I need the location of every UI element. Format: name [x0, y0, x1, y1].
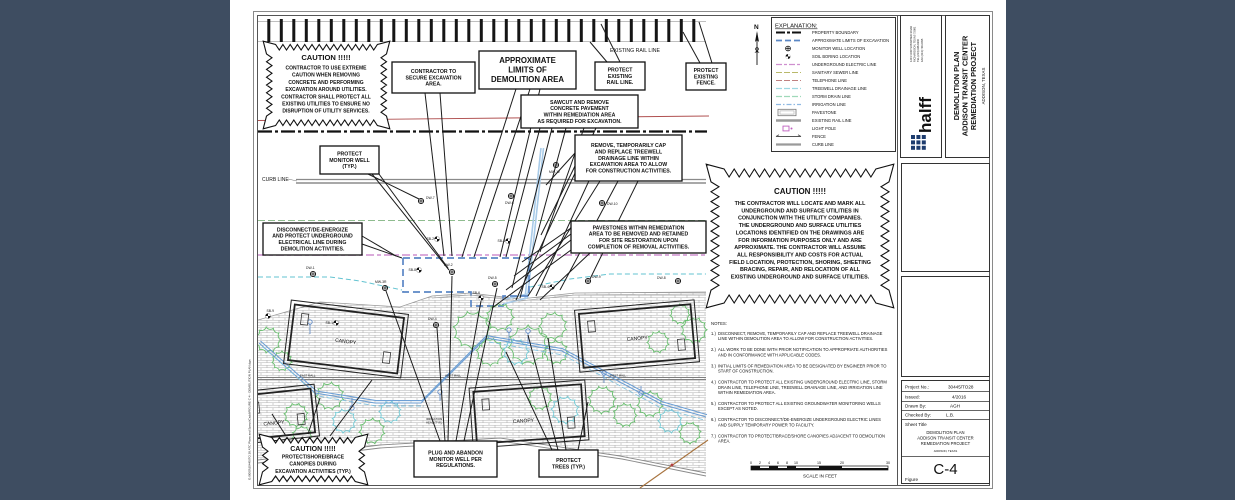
svg-text:CONTRACTOR TO PROTECT/BRACE/SH: CONTRACTOR TO PROTECT/BRACE/SHORE CANOPI…: [718, 433, 885, 438]
svg-text:DEMOLITION ACTIVITIES.: DEMOLITION ACTIVITIES.: [281, 246, 345, 252]
svg-text:Issued:: Issued:: [905, 395, 920, 400]
svg-text:EXCAVATION ACTIVITIES (TYP.): EXCAVATION ACTIVITIES (TYP.): [275, 469, 351, 475]
svg-text:ADDISON TRANSIT CENTER: ADDISON TRANSIT CENTER: [917, 436, 973, 441]
svg-text:(TYP.): (TYP.): [342, 164, 357, 170]
svg-text:EAST MALL: EAST MALL: [300, 374, 316, 378]
svg-text:EXISTING RAIL LINE: EXISTING RAIL LINE: [610, 48, 661, 54]
svg-text:STORM DRAIN LINE: STORM DRAIN LINE: [812, 94, 851, 99]
svg-text:DW-5: DW-5: [488, 276, 497, 280]
svg-text:TREEWELL DRAINAGE LINE: TREEWELL DRAINAGE LINE: [812, 86, 867, 91]
svg-text:DISCONNECT/DE-ENERGIZE: DISCONNECT/DE-ENERGIZE: [277, 227, 349, 233]
svg-text:1201 NORTH BOWSER ROAD: 1201 NORTH BOWSER ROAD: [909, 26, 913, 62]
svg-text:4/2016: 4/2016: [952, 395, 966, 400]
svg-text:DEMOLITION AREA: DEMOLITION AREA: [491, 75, 564, 84]
svg-text:CONTRACTOR TO USE EXTREME: CONTRACTOR TO USE EXTREME: [286, 66, 368, 72]
svg-text:SAWCUT AND REMOVE: SAWCUT AND REMOVE: [550, 100, 609, 106]
svg-text:CANOPIES DURING: CANOPIES DURING: [289, 462, 336, 468]
svg-text:DW-1: DW-1: [306, 266, 315, 270]
svg-text:5.): 5.): [711, 401, 716, 406]
svg-text:RAIL LINE.: RAIL LINE.: [607, 80, 634, 86]
svg-text:UNDERGROUND ELECTRIC LINE: UNDERGROUND ELECTRIC LINE: [812, 62, 877, 67]
svg-text:SB-8: SB-8: [408, 268, 416, 272]
svg-text:SB-1: SB-1: [325, 321, 333, 325]
svg-text:FOR SITE RESTORATION UPON: FOR SITE RESTORATION UPON: [599, 238, 678, 244]
svg-text:DW-10: DW-10: [607, 202, 618, 206]
svg-text:CONTRACTOR TO: CONTRACTOR TO: [411, 69, 456, 75]
svg-text:NOTES:: NOTES:: [711, 321, 727, 326]
svg-text:PROTECT: PROTECT: [694, 68, 720, 74]
svg-text:DW-9: DW-9: [592, 275, 601, 279]
svg-text:Drawn By:: Drawn By:: [905, 404, 926, 409]
svg-text:7.): 7.): [711, 433, 716, 438]
svg-text:DISRUPTION OF UTILITY SERVICES: DISRUPTION OF UTILITY SERVICES.: [282, 109, 370, 115]
svg-text:MONITOR WELL: MONITOR WELL: [329, 158, 370, 164]
svg-text:AS REQUIRED FOR EXCAVATION.: AS REQUIRED FOR EXCAVATION.: [537, 119, 622, 125]
svg-text:Figure: Figure: [905, 477, 918, 482]
svg-text:EXISTING UNDERGROUND AND SURFA: EXISTING UNDERGROUND AND SURFACE UTILITI…: [731, 275, 870, 281]
svg-text:0: 0: [750, 461, 752, 465]
svg-text:3.): 3.): [711, 363, 716, 368]
svg-text:TELEPHONE LINE: TELEPHONE LINE: [812, 78, 847, 83]
svg-text:2: 2: [759, 461, 761, 465]
svg-text:LOCATIONS IDENTIFIED ON THE DR: LOCATIONS IDENTIFIED ON THE DRAWINGS ARE: [736, 230, 865, 236]
svg-text:AGH: AGH: [950, 404, 960, 409]
svg-text:CONJUNCTION WITH THE UTILITY C: CONJUNCTION WITH THE UTILITY COMPANIES.: [738, 216, 863, 222]
svg-text:ADDISON, TEXAS: ADDISON, TEXAS: [934, 449, 958, 453]
svg-text:MONITOR WELL LOCATION: MONITOR WELL LOCATION: [812, 46, 865, 51]
svg-text:FAX (214) 739-0095: FAX (214) 739-0095: [920, 38, 924, 62]
svg-text:APPROXIMATE. THE CONTRACTOR W: APPROXIMATE. THE CONTRACTOR WILL ASSUME: [734, 245, 866, 251]
svg-text:RICHARDSON, TEXAS 75081: RICHARDSON, TEXAS 75081: [913, 26, 917, 62]
svg-text:PROPERTY BOUNDARY: PROPERTY BOUNDARY: [812, 30, 859, 35]
svg-text:WITHIN REMEDIATION AREA.: WITHIN REMEDIATION AREA.: [718, 390, 776, 395]
svg-text:8: 8: [786, 461, 788, 465]
svg-text:1.): 1.): [711, 331, 716, 336]
svg-text:CAUTION !!!!!: CAUTION !!!!!: [301, 53, 350, 62]
svg-text:REMEDIATION PROJECT: REMEDIATION PROJECT: [969, 41, 978, 130]
svg-text:AND PROTECT UNDERGROUND: AND PROTECT UNDERGROUND: [272, 234, 353, 240]
svg-text:AND REPLACE TREEWELL: AND REPLACE TREEWELL: [595, 149, 663, 155]
svg-text:EXPLANATION:: EXPLANATION:: [775, 24, 818, 30]
svg-text:PROTECT: PROTECT: [556, 458, 582, 464]
svg-text:Checked By:: Checked By:: [905, 413, 931, 418]
svg-text:FIELD LOCATION, PROTECTION, SH: FIELD LOCATION, PROTECTION, SHORING, SHE…: [729, 260, 871, 266]
svg-text:AND SUPPLY TEMPORARY POWER TO: AND SUPPLY TEMPORARY POWER TO FACILITY.: [718, 422, 814, 427]
svg-text:30445/TO28: 30445/TO28: [948, 385, 974, 390]
svg-text:CONTRACTOR SHALL PROTECT ALL: CONTRACTOR SHALL PROTECT ALL: [281, 94, 371, 100]
svg-text:LINE WITHIN DEMOLITION AREA TO: LINE WITHIN DEMOLITION AREA TO ALLOW FOR…: [718, 336, 873, 341]
svg-text:4: 4: [768, 461, 770, 465]
svg-text:EXISTING: EXISTING: [608, 74, 632, 80]
svg-text:10: 10: [794, 461, 798, 465]
svg-text:REGULATIONS.: REGULATIONS.: [436, 463, 475, 469]
svg-text:DEMOLITION PLAN: DEMOLITION PLAN: [926, 430, 964, 435]
svg-text:CONCRETE PAVEMENT: CONCRETE PAVEMENT: [550, 106, 609, 112]
svg-text:DW-7: DW-7: [426, 196, 435, 200]
svg-text:AND IN CONFORMANCE WITH APPLIC: AND IN CONFORMANCE WITH APPLICABLE CODES…: [718, 352, 821, 357]
svg-text:Sheet Title: Sheet Title: [905, 422, 927, 427]
svg-text:CAUTION !!!!!: CAUTION !!!!!: [774, 187, 826, 196]
svg-text:PROTECT/SHORE/BRACE: PROTECT/SHORE/BRACE: [282, 455, 345, 461]
svg-text:FENCE.: FENCE.: [696, 81, 716, 87]
svg-text:START OF CONSTRUCTION.: START OF CONSTRUCTION.: [718, 369, 774, 374]
svg-text:AREA.: AREA.: [425, 82, 442, 88]
svg-text:EXISTING: EXISTING: [694, 74, 718, 80]
svg-text:FOR CONSTRUCTION ACTIVITIES.: FOR CONSTRUCTION ACTIVITIES.: [586, 169, 672, 175]
svg-text:TEL (214) 346-6200: TEL (214) 346-6200: [916, 38, 920, 62]
svg-text:EXCEPT AS NOTED.: EXCEPT AS NOTED.: [718, 406, 758, 411]
svg-text:DRAINAGE LINE WITHIN: DRAINAGE LINE WITHIN: [598, 156, 659, 162]
svg-text:20: 20: [840, 461, 844, 465]
svg-text:Project No.:: Project No.:: [905, 385, 929, 390]
svg-text:ALL RESPONSIBILITY AND COSTS F: ALL RESPONSIBILITY AND COSTS FOR ACTUAL: [737, 252, 864, 258]
svg-text:LIGHT POLE: LIGHT POLE: [812, 126, 836, 131]
svg-text:FENCE: FENCE: [812, 134, 826, 139]
svg-text:UNDERGROUND AND SURFACE UTILIT: UNDERGROUND AND SURFACE UTILITIES IN: [741, 208, 858, 214]
svg-text:EXISTING RAIL LINE: EXISTING RAIL LINE: [812, 118, 852, 123]
svg-text:WEST MALL: WEST MALL: [610, 374, 627, 378]
svg-text:REMEDIATION PROJECT: REMEDIATION PROJECT: [921, 441, 971, 446]
svg-text:BRACING, REPAIR, AND RELOCATIO: BRACING, REPAIR, AND RELOCATION OF ALL: [740, 267, 861, 273]
svg-text:WEST MALL: WEST MALL: [445, 374, 462, 378]
svg-text:EXCAVATION AROUND UTILITIES.: EXCAVATION AROUND UTILITIES.: [285, 87, 367, 93]
svg-text:MONITOR WELL PER: MONITOR WELL PER: [429, 457, 482, 463]
svg-text:REMOVE, TEMPORARILY CAP: REMOVE, TEMPORARILY CAP: [591, 143, 666, 149]
svg-text:SANITARY SEWER LINE: SANITARY SEWER LINE: [812, 70, 859, 75]
svg-text:EXISTING UTILITIES TO ENSURE N: EXISTING UTILITIES TO ENSURE NO: [282, 102, 370, 108]
svg-text:6.): 6.): [711, 417, 716, 422]
svg-text:PLUG AND ABANDON: PLUG AND ABANDON: [428, 450, 483, 456]
svg-text:6: 6: [777, 461, 779, 465]
svg-text:PROTECT: PROTECT: [608, 67, 634, 73]
svg-text:CONCRETE AND PERFORMING: CONCRETE AND PERFORMING: [288, 80, 363, 86]
svg-text:2.): 2.): [711, 347, 716, 352]
svg-text:FOR INFORMATION PURPOSES ONLY: FOR INFORMATION PURPOSES ONLY AND ARE: [738, 238, 862, 244]
svg-text:SOIL BORING LOCATION: SOIL BORING LOCATION: [812, 54, 860, 59]
svg-text:G:\0000\30445\TO 28 ATC Plans: G:\0000\30445\TO 28 ATC Plans and Specs\…: [248, 359, 252, 480]
svg-text:COMPLETION OF REMOVAL ACTIVITI: COMPLETION OF REMOVAL ACTIVITIES.: [588, 244, 690, 250]
svg-text:CAUTION WHEN REMOVING: CAUTION WHEN REMOVING: [292, 73, 360, 79]
svg-text:AREA TO BE REMOVED AND RETAINE: AREA TO BE REMOVED AND RETAINED: [589, 232, 689, 238]
svg-text:PROTECT: PROTECT: [337, 151, 363, 157]
svg-text:EXCAVATION AREA TO ALLOW: EXCAVATION AREA TO ALLOW: [590, 162, 668, 168]
svg-text:APPROXIMATE: APPROXIMATE: [499, 56, 556, 65]
svg-text:30: 30: [886, 461, 890, 465]
svg-text:ADDISON, TEXAS: ADDISON, TEXAS: [981, 68, 986, 105]
svg-text:N: N: [754, 24, 759, 31]
svg-text:4.): 4.): [711, 380, 716, 385]
svg-text:APPROXIMATE LIMITS OF EXCAVATI: APPROXIMATE LIMITS OF EXCAVATION: [812, 38, 889, 43]
svg-text:TREES (TYP.): TREES (TYP.): [552, 464, 585, 470]
svg-text:PAVESTONES WITHIN REMEDIATION: PAVESTONES WITHIN REMEDIATION: [593, 225, 685, 231]
svg-text:SB-9: SB-9: [266, 309, 274, 313]
svg-text:THE CONTRACTOR WILL LOCATE AND: THE CONTRACTOR WILL LOCATE AND MARK ALL: [735, 201, 866, 207]
svg-text:LIMITS OF: LIMITS OF: [508, 66, 547, 75]
svg-text:halff: halff: [916, 97, 935, 133]
svg-text:ELECTRICAL LINE DURING: ELECTRICAL LINE DURING: [279, 240, 347, 246]
svg-text:L.B.: L.B.: [946, 413, 954, 418]
svg-text:CURB LINE: CURB LINE: [262, 177, 289, 183]
svg-text:THE UNDERGROUND AND SURFACE UT: THE UNDERGROUND AND SURFACE UTILITIES: [739, 223, 862, 229]
svg-text:MW-3R: MW-3R: [375, 280, 387, 284]
svg-text:SB-6: SB-6: [472, 291, 480, 295]
svg-text:DW-8: DW-8: [657, 276, 666, 280]
svg-text:WITHIN REMEDIATION AREA: WITHIN REMEDIATION AREA: [544, 112, 616, 118]
svg-text:PAVESTONE: PAVESTONE: [812, 110, 837, 115]
svg-text:SECURE EXCAVATION: SECURE EXCAVATION: [406, 75, 462, 81]
svg-text:C-4: C-4: [933, 461, 957, 478]
svg-text:DW-4: DW-4: [428, 317, 437, 321]
svg-text:CURB LINE: CURB LINE: [812, 142, 834, 147]
svg-text:SB-4: SB-4: [541, 285, 549, 289]
svg-text:SCALE IN FEET: SCALE IN FEET: [803, 474, 837, 479]
svg-text:AREA.: AREA.: [718, 439, 730, 444]
svg-text:15: 15: [817, 461, 821, 465]
svg-text:CAUTION !!!!!: CAUTION !!!!!: [290, 446, 336, 453]
svg-text:IRRIGATION LINE: IRRIGATION LINE: [812, 102, 846, 107]
